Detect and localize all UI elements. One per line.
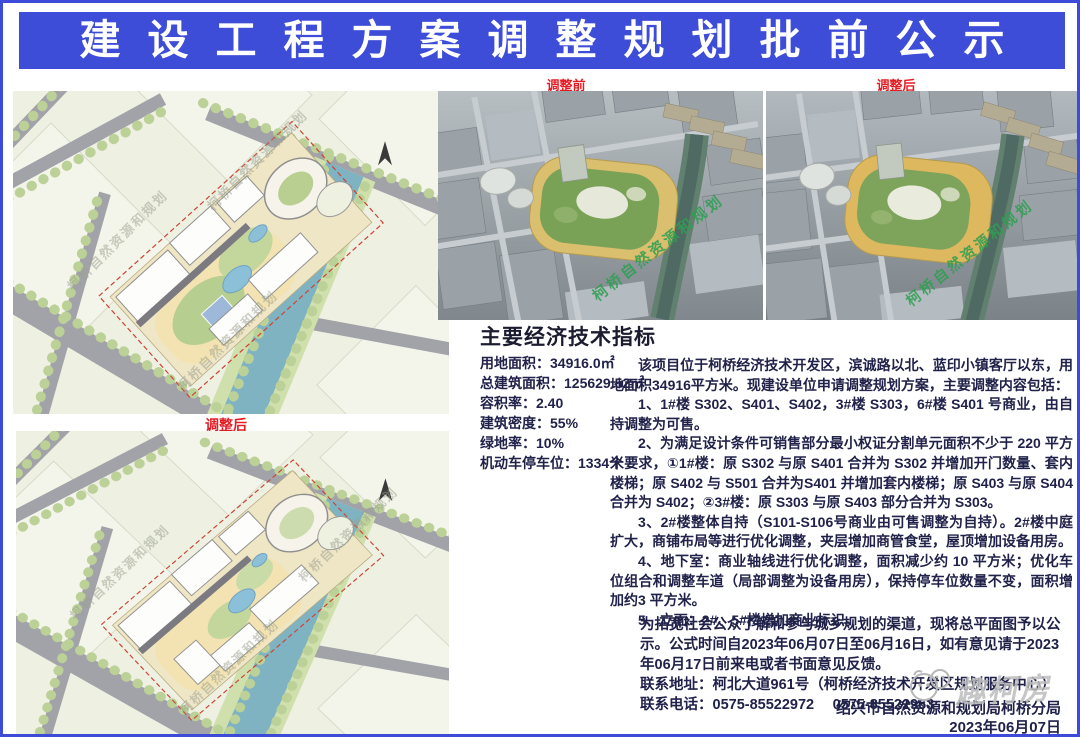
- notice-paragraph: 该项目位于柯桥经济技术开发区，滨诚路以北、蓝印小镇客厅以东，用地面积34916平…: [610, 356, 1073, 395]
- siteplan-before-image: 柯桥自然资源和规划 柯桥自然资源和规划 柯桥自然资源和规划: [13, 91, 449, 414]
- notice-body: 该项目位于柯桥经济技术开发区，滨诚路以北、蓝印小镇客厅以东，用地面积34916平…: [610, 356, 1073, 630]
- notice-paragraph: 2、为满足设计条件可销售部分最小权证分割单元面积不少于 220 平方米要求，①1…: [610, 434, 1073, 512]
- indicators-heading: 主要经济技术指标: [480, 321, 656, 351]
- chick-logo-icon: [906, 663, 958, 705]
- aerial-before-image: 柯桥自然资源和规划: [438, 91, 763, 320]
- notice-paragraph: 4、地下室：商业轴线进行优化调整，面积减少约 10 平方米；优化车位组合和调整车…: [610, 552, 1073, 611]
- notice-date: 2023年06月07日: [640, 716, 1061, 737]
- aerial-after-image: 柯桥自然资源和规划: [766, 91, 1080, 320]
- banner-title: 建设工程方案调整规划批前公示: [19, 12, 1065, 69]
- brand-watermark: 趣柯房: [954, 662, 1080, 713]
- notice-paragraph: 3、2#楼整体自持（S101-S106号商业由可售调整为自持）。2#楼中庭扩大，…: [610, 513, 1073, 552]
- notice-paragraph: 1、1#楼 S302、S401、S402，3#楼 S303，6#楼 S401 号…: [610, 395, 1073, 434]
- public-notice-page: 建设工程方案调整规划批前公示 调整前 调整后: [0, 0, 1080, 737]
- siteplan-after-image: 柯桥自然资源和规划 柯桥自然资源和规划 柯桥自然资源和规划: [16, 431, 449, 736]
